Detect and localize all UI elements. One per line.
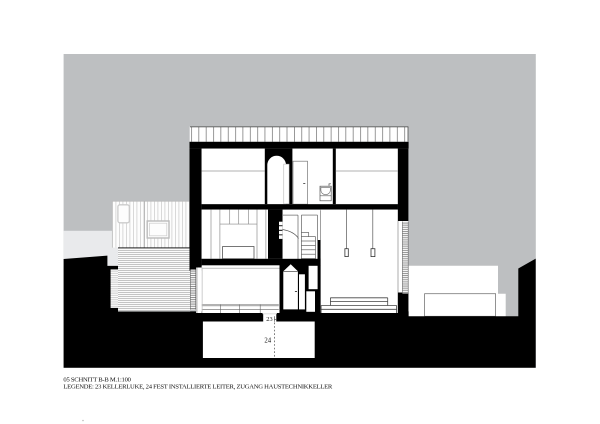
svg-text:LEGENDE: 23 KELLERLUKE, 24 FES: LEGENDE: 23 KELLERLUKE, 24 FEST INSTALLI… xyxy=(63,384,333,391)
svg-text:05 SCHNITT B-B M.1:100: 05 SCHNITT B-B M.1:100 xyxy=(63,376,131,383)
svg-text:24: 24 xyxy=(264,337,271,344)
svg-text:23: 23 xyxy=(266,316,272,323)
